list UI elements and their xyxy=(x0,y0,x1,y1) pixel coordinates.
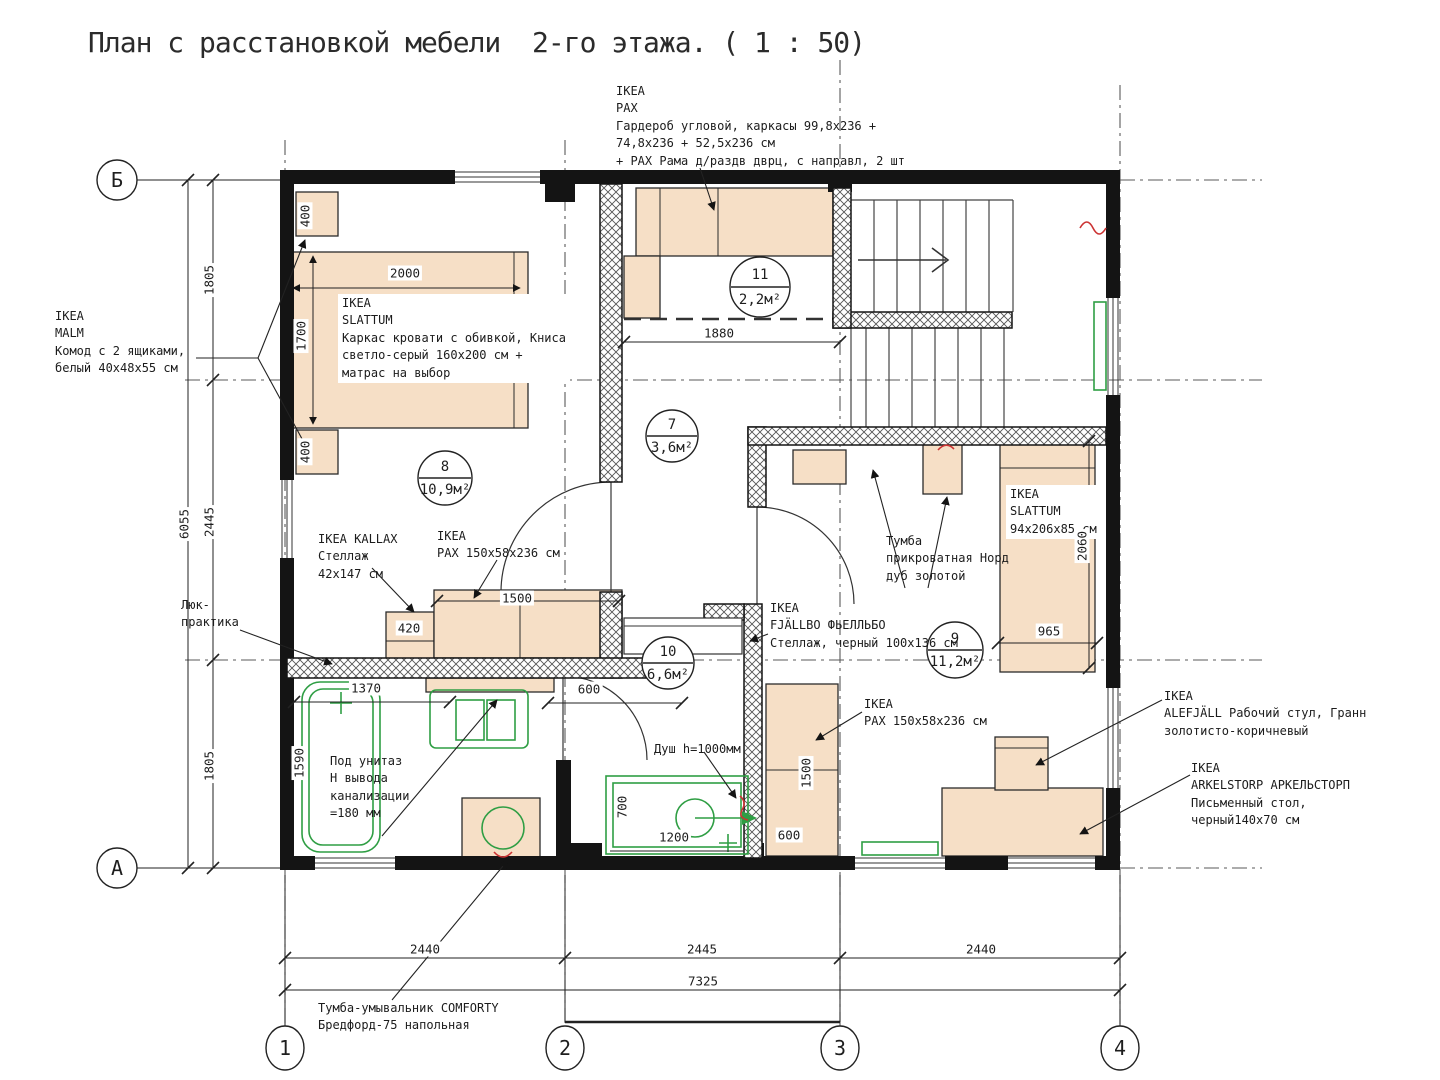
axis-label-3: 3 xyxy=(834,1036,846,1060)
room9-number: 9 xyxy=(951,631,959,647)
room8-number: 8 xyxy=(441,459,449,475)
corner-pax-side xyxy=(624,256,660,318)
dim-nook-width: 1880 xyxy=(702,326,736,341)
note-comforty: Тумба-умывальник COMFORTY Бредфорд-75 на… xyxy=(318,1000,499,1035)
kallax-shelf xyxy=(386,612,434,660)
room11-number: 11 xyxy=(752,267,769,283)
dim-bed9-height: 2060 xyxy=(1075,529,1090,563)
room7-number: 7 xyxy=(668,417,676,433)
dim-bath-width: 1370 xyxy=(349,681,383,696)
note-pax-wardrobe: IKEA PAX 150x58x236 см xyxy=(437,528,560,563)
dim-left-mid: 2445 xyxy=(202,505,217,539)
dim-pax-width: 1500 xyxy=(500,591,534,606)
note-pax-wardrobe-2: IKEA PAX 150x58x236 см xyxy=(864,696,987,731)
room9-area: 11,2м² xyxy=(930,654,981,670)
radiator-bottom xyxy=(862,842,938,855)
room10-area: 6,6м² xyxy=(647,667,689,683)
dim-span-1-2: 2440 xyxy=(408,942,442,957)
dim-malm-top: 400 xyxy=(298,203,313,230)
dim-shower-depth: 700 xyxy=(615,794,630,821)
dim-pax-depth: 600 xyxy=(576,682,603,697)
note-malm: IKEA MALM Комод с 2 ящиками, белый 40x48… xyxy=(55,308,185,378)
corner-pax-top xyxy=(636,188,833,256)
floor-plan-page: План с расстановкой мебели 2-го этажа. (… xyxy=(0,0,1440,1080)
dim-bed-height: 1700 xyxy=(294,319,309,353)
dim-pax2-width: 600 xyxy=(776,828,803,843)
note-pax-corner: IKEA PAX Гардероб угловой, каркасы 99,8x… xyxy=(616,83,905,170)
axis-label-2: 2 xyxy=(559,1036,571,1060)
note-bedside-nord: Тумба прикроватная Норд дуб золотой xyxy=(886,533,1009,585)
note-hatch: Люк- практика xyxy=(181,597,239,632)
stair-direction-arrow xyxy=(858,248,948,272)
axis-label-4: 4 xyxy=(1114,1036,1126,1060)
dim-malm-bottom: 400 xyxy=(298,439,313,466)
dim-bed-width: 2000 xyxy=(388,266,422,281)
nightstand-b xyxy=(923,443,962,494)
dim-left-top: 1805 xyxy=(202,263,217,297)
dim-span-2-3: 2445 xyxy=(685,942,719,957)
dim-kallax-width: 420 xyxy=(396,621,423,636)
note-arkelstorp: IKEA ARKELSTORP АРКЕЛЬСТОРП Письменный с… xyxy=(1191,760,1350,830)
note-alefjall: IKEA ALEFJÄLL Рабочий стул, Гранн золоти… xyxy=(1164,688,1366,740)
dim-shower-width: 1200 xyxy=(657,830,691,845)
dim-bed9-width: 965 xyxy=(1036,624,1063,639)
note-slattum-bed: IKEA SLATTUM Каркас кровати с обивкой, К… xyxy=(338,294,570,383)
note-shower: Душ h=1000мм xyxy=(654,741,741,758)
note-toilet: Под унитаз Н вывода канализации =180 мм xyxy=(330,753,409,823)
drawing-title: План с расстановкой мебели 2-го этажа. (… xyxy=(88,26,865,59)
dim-pax2-height: 1500 xyxy=(799,756,814,790)
room7-area: 3,6м² xyxy=(651,440,693,456)
dim-bath-height: 1590 xyxy=(292,746,307,780)
desk xyxy=(942,788,1103,856)
dim-total-width: 7325 xyxy=(686,974,720,989)
room10-number: 10 xyxy=(660,644,677,660)
nightstand-a xyxy=(793,450,846,484)
note-kallax: IKEA KALLAX Стеллаж 42x147 см xyxy=(318,531,397,583)
dim-left-total: 6055 xyxy=(177,507,192,541)
axis-label-a: А xyxy=(111,856,123,880)
room8-area: 10,9м² xyxy=(420,482,471,498)
room11-area: 2,2м² xyxy=(739,292,781,308)
note-fjallbo: IKEA FJÄLLBO ФЬЕЛЛЬБО Стеллаж, черный 10… xyxy=(770,600,958,652)
axis-label-b: Б xyxy=(111,168,123,192)
axis-label-1: 1 xyxy=(279,1036,291,1060)
dim-left-bottom: 1805 xyxy=(202,749,217,783)
dim-span-3-4: 2440 xyxy=(964,942,998,957)
radiator-right xyxy=(1094,302,1106,390)
